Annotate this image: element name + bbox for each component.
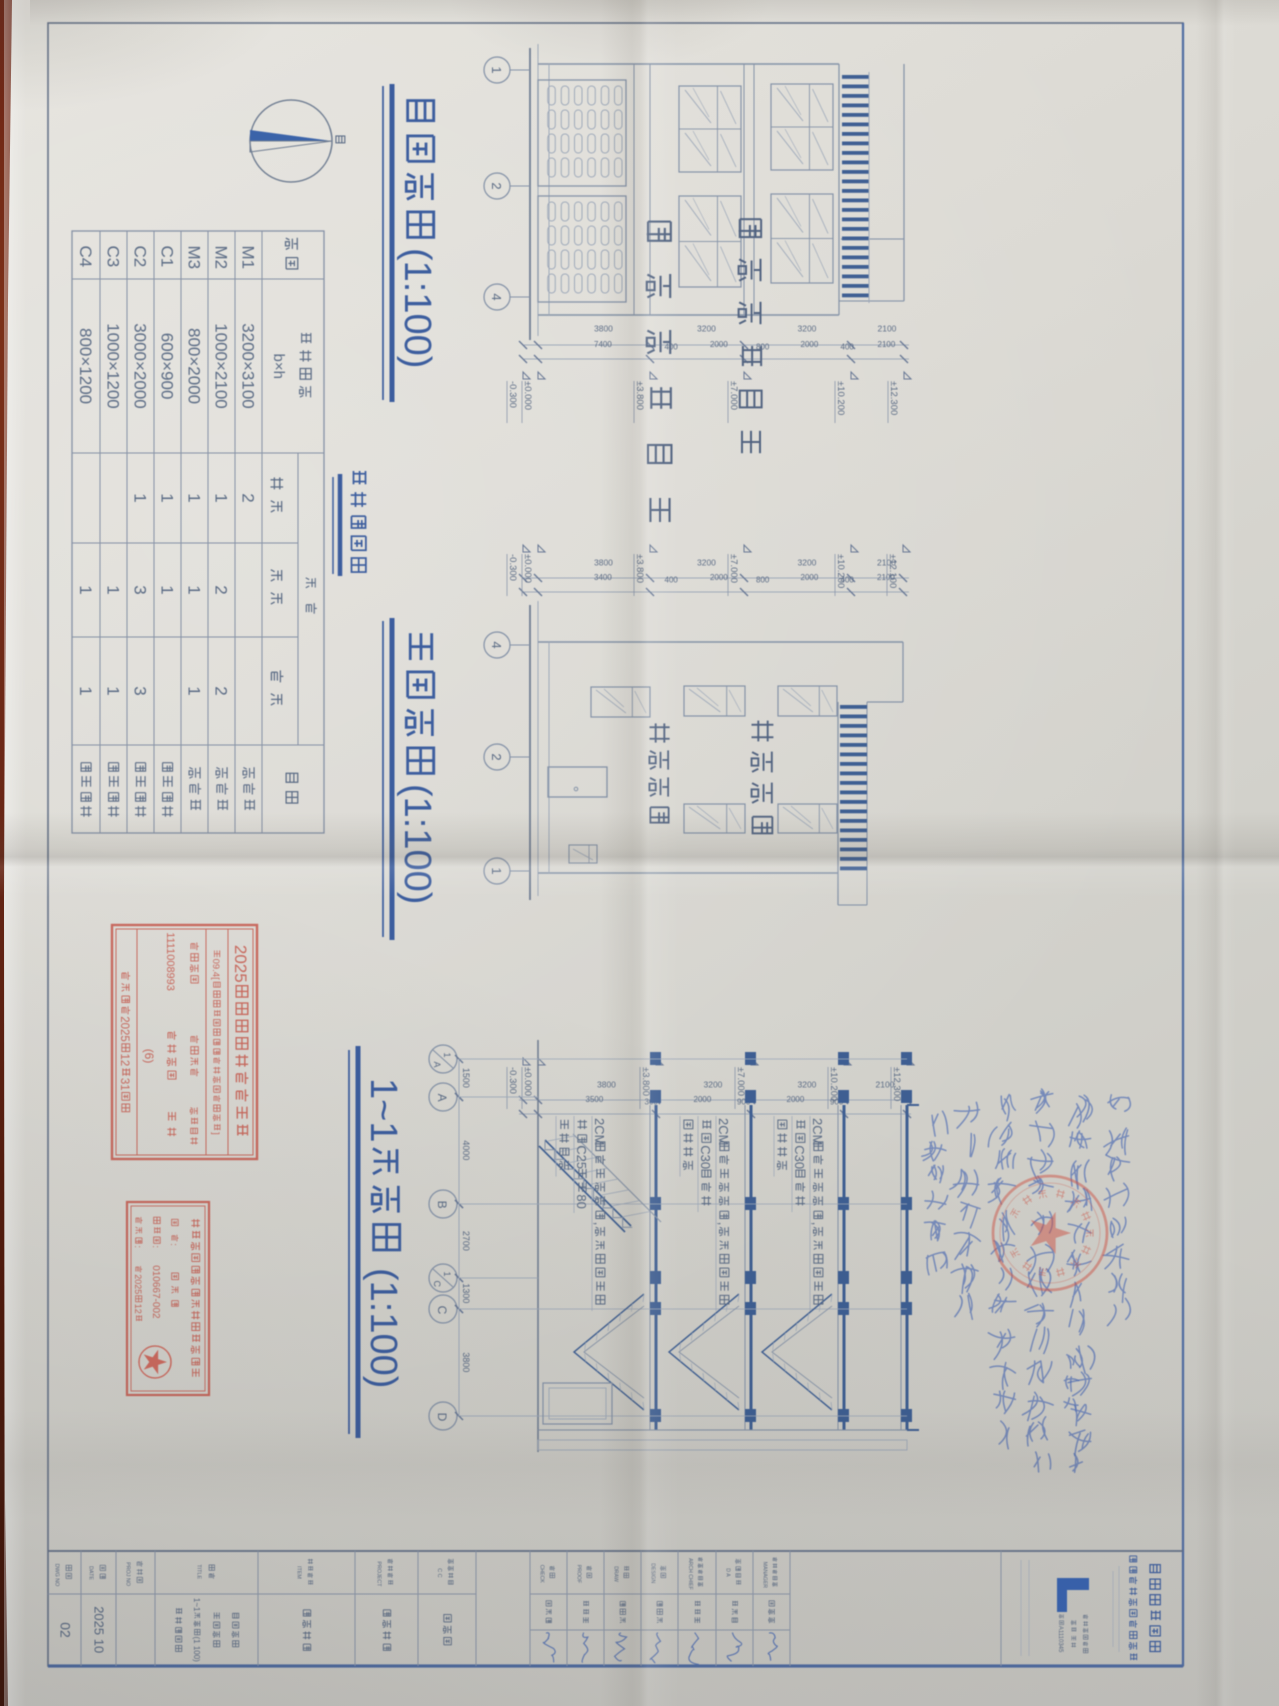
svg-text:C1: C1 [158, 246, 177, 268]
svg-text:,: , [810, 1222, 825, 1226]
svg-text:800×1200: 800×1200 [76, 328, 95, 404]
svg-text:,: , [592, 1222, 607, 1226]
svg-text:2700: 2700 [461, 1231, 471, 1251]
svg-text:±3.800: ±3.800 [640, 1067, 651, 1096]
svg-text:3200: 3200 [697, 324, 716, 334]
svg-text:3200: 3200 [697, 558, 716, 568]
svg-text:M3: M3 [185, 246, 204, 270]
svg-text:2: 2 [212, 686, 231, 695]
svg-text:2100: 2100 [878, 340, 896, 349]
svg-text:2: 2 [239, 493, 258, 502]
svg-text:±10.200: ±10.200 [835, 381, 846, 415]
svg-text:(6): (6) [142, 1049, 156, 1064]
svg-text:1: 1 [76, 686, 95, 695]
svg-text:2000: 2000 [801, 340, 819, 349]
svg-text:1: 1 [104, 585, 123, 594]
svg-text:2000: 2000 [787, 1095, 805, 1104]
svg-text:2000: 2000 [694, 1095, 712, 1104]
svg-text:DWG NO: DWG NO [54, 1564, 60, 1587]
svg-text:1300: 1300 [461, 1283, 471, 1303]
svg-text:1: 1 [185, 686, 204, 695]
svg-text:80: 80 [574, 1194, 589, 1208]
svg-text:1: 1 [212, 493, 231, 502]
svg-text:ARCH CHIEF: ARCH CHIEF [687, 1558, 693, 1590]
svg-text:800: 800 [756, 575, 770, 584]
svg-text:02: 02 [58, 1622, 74, 1638]
svg-text:1: 1 [185, 493, 204, 502]
svg-text:800×2000: 800×2000 [185, 328, 204, 404]
svg-text:400: 400 [841, 342, 855, 351]
svg-text:1: 1 [158, 493, 177, 502]
svg-text:TITLE: TITLE [196, 1564, 202, 1579]
svg-text:7400: 7400 [594, 340, 612, 349]
svg-text::: : [168, 1243, 179, 1246]
svg-text:1: 1 [442, 1272, 452, 1277]
svg-text:4: 4 [489, 293, 504, 300]
svg-text:b×h: b×h [270, 354, 287, 379]
svg-text:(1:100): (1:100) [396, 248, 438, 368]
svg-text:C: C [432, 1281, 442, 1288]
svg-text:D A: D A [725, 1568, 731, 1577]
svg-text:2: 2 [489, 182, 504, 189]
svg-text:±7.000: ±7.000 [728, 381, 739, 410]
svg-text:±12.300: ±12.300 [888, 381, 899, 415]
svg-text:010667-002: 010667-002 [150, 1265, 161, 1319]
svg-text:1: 1 [158, 585, 177, 594]
svg-text:1111008993: 1111008993 [164, 932, 176, 991]
svg-text:31: 31 [118, 1078, 130, 1091]
svg-text:3000×2000: 3000×2000 [131, 323, 150, 409]
svg-text:±0.000: ±0.000 [522, 1067, 533, 1096]
svg-text:3200: 3200 [798, 324, 817, 334]
svg-text:PROJ NO: PROJ NO [125, 1562, 131, 1586]
svg-text:PROOF: PROOF [576, 1565, 582, 1583]
svg-text:]: ] [210, 1132, 221, 1135]
svg-text:M1: M1 [239, 246, 258, 270]
svg-text:C30: C30 [698, 1145, 713, 1169]
svg-text:PROJECT: PROJECT [376, 1561, 382, 1587]
svg-text:-0.300: -0.300 [507, 381, 518, 408]
svg-text:09.4[: 09.4[ [210, 959, 221, 980]
svg-text:2025: 2025 [231, 945, 250, 983]
svg-text:3200: 3200 [798, 1080, 817, 1090]
svg-text:3200×3100: 3200×3100 [239, 323, 258, 409]
svg-text:DATE: DATE [88, 1566, 94, 1580]
svg-text:2025: 2025 [118, 1016, 130, 1042]
svg-text:A: A [435, 1094, 449, 1102]
svg-text:3800: 3800 [597, 1080, 616, 1090]
svg-text:3500: 3500 [586, 1095, 604, 1104]
svg-text:2: 2 [212, 585, 231, 594]
svg-text:2000: 2000 [801, 573, 819, 582]
svg-text:1: 1 [76, 585, 95, 594]
svg-text:1~1: 1~1 [362, 1078, 404, 1142]
svg-text:-0.300: -0.300 [507, 1067, 518, 1094]
svg-text:1: 1 [185, 585, 204, 594]
svg-text:±0.000: ±0.000 [522, 381, 533, 410]
svg-text:C3: C3 [104, 246, 123, 268]
svg-text:A: A [432, 1062, 442, 1068]
svg-text:3: 3 [131, 686, 150, 695]
svg-text:1: 1 [104, 686, 123, 695]
svg-text:2000: 2000 [710, 573, 728, 582]
svg-text:C C: C C [436, 1568, 442, 1577]
svg-text:MANAGER: MANAGER [762, 1562, 768, 1588]
svg-text:1~1: 1~1 [192, 1598, 201, 1612]
svg-text:4: 4 [489, 641, 504, 648]
svg-text:2100: 2100 [878, 324, 897, 334]
svg-text:3200: 3200 [798, 558, 817, 568]
svg-text:CHECK: CHECK [539, 1565, 545, 1584]
svg-text:600×900: 600×900 [158, 333, 177, 400]
svg-text:±7.000: ±7.000 [728, 554, 739, 583]
svg-text:2025 10: 2025 10 [92, 1606, 107, 1653]
svg-text:±10.200: ±10.200 [828, 1067, 839, 1101]
svg-text:2: 2 [489, 753, 504, 760]
svg-text:±12.100: ±12.100 [887, 554, 898, 588]
svg-text:4000: 4000 [461, 1140, 471, 1160]
svg-text:±3.800: ±3.800 [634, 554, 645, 583]
svg-text:3: 3 [131, 585, 150, 594]
svg-text:±0.000: ±0.000 [522, 554, 533, 583]
svg-text:ITEM: ITEM [296, 1566, 302, 1579]
svg-text:3800: 3800 [461, 1352, 471, 1372]
svg-text:C25: C25 [574, 1145, 589, 1169]
svg-text:2CM: 2CM [716, 1118, 731, 1145]
svg-text::: : [150, 1245, 161, 1248]
svg-text:C4: C4 [76, 246, 95, 268]
svg-text:C: C [435, 1306, 449, 1315]
svg-text:B: B [435, 1201, 449, 1209]
svg-text:3400: 3400 [594, 573, 612, 582]
svg-text:M2: M2 [212, 246, 231, 270]
svg-text:(1:100): (1:100) [362, 1268, 404, 1388]
svg-text:1: 1 [489, 867, 504, 874]
svg-text:C2: C2 [131, 246, 150, 268]
svg-text:±7.000: ±7.000 [735, 1067, 746, 1096]
svg-text:1: 1 [131, 493, 150, 502]
svg-text:1: 1 [442, 1053, 452, 1058]
svg-text:,: , [716, 1222, 731, 1226]
svg-text:3800: 3800 [594, 558, 613, 568]
svg-text:3200: 3200 [704, 1080, 723, 1090]
svg-text:3800: 3800 [594, 324, 613, 334]
svg-text:±10.200: ±10.200 [835, 554, 846, 588]
svg-text:±3.800: ±3.800 [634, 381, 645, 410]
svg-text:A1110345: A1110345 [1057, 1626, 1063, 1653]
svg-text:1500: 1500 [461, 1068, 471, 1088]
svg-text:400: 400 [665, 575, 679, 584]
svg-text:±12.300: ±12.300 [891, 1067, 902, 1101]
svg-text:1000×1200: 1000×1200 [104, 323, 123, 409]
svg-text:DESIGN: DESIGN [650, 1563, 656, 1583]
svg-text:(1 100): (1 100) [192, 1637, 201, 1663]
svg-text:12: 12 [133, 1304, 143, 1314]
svg-text::: : [132, 1245, 143, 1248]
svg-text:12: 12 [118, 1054, 130, 1067]
svg-text:1: 1 [489, 66, 504, 73]
svg-text:400: 400 [665, 342, 679, 351]
svg-text:2CM: 2CM [592, 1118, 607, 1145]
svg-text:1000×2100: 1000×2100 [212, 323, 231, 409]
svg-text:2000: 2000 [710, 340, 728, 349]
svg-text:C30: C30 [792, 1145, 807, 1169]
svg-text:DRAW: DRAW [613, 1566, 619, 1582]
svg-text:2025: 2025 [133, 1274, 143, 1294]
svg-text:(1:100): (1:100) [396, 784, 438, 904]
svg-text:2CM: 2CM [810, 1118, 825, 1145]
svg-text:-0.300: -0.300 [507, 554, 518, 581]
svg-text:D: D [435, 1413, 449, 1422]
